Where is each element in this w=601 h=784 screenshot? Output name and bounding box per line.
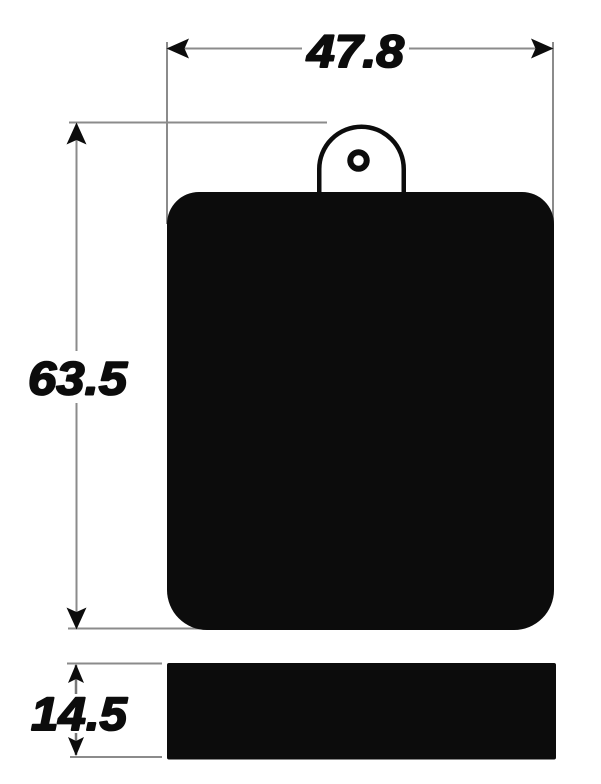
svg-text:47.8: 47.8 bbox=[306, 25, 405, 77]
svg-text:63.5: 63.5 bbox=[28, 352, 128, 405]
svg-text:14.5: 14.5 bbox=[31, 687, 128, 740]
